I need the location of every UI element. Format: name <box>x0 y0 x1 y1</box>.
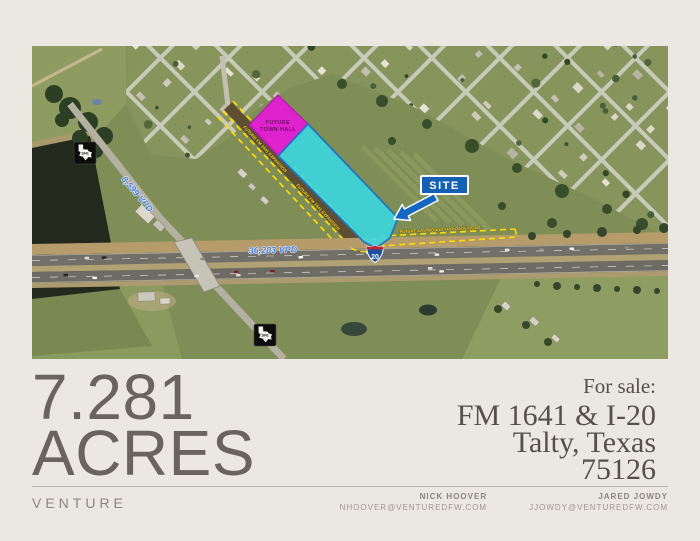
footer: VENTURE NICK HOOVER NHOOVER@VENTUREDFW.C… <box>32 492 668 512</box>
acreage-label: ACRES <box>32 425 255 481</box>
fm1641-shield-icon-south <box>254 324 276 346</box>
town-hall-label-line2: TOWN HALL <box>260 127 296 133</box>
town-hall-label-line1: FUTURE <box>266 120 290 126</box>
pond <box>341 322 367 336</box>
aerial-map-svg: 1641 <box>32 46 668 359</box>
fm1641-shield-icon <box>74 142 96 164</box>
contact-block: JARED JOWDY JJOWDY@VENTUREDFW.COM <box>529 492 668 512</box>
flyer-page: 1641 <box>0 0 700 541</box>
contact-name: JARED JOWDY <box>529 492 668 501</box>
address-line-2: Talty, Texas <box>457 429 656 456</box>
details-section: 7.281 ACRES For sale: FM 1641 & I-20 Tal… <box>32 369 668 483</box>
site-callout-label: SITE <box>429 180 459 192</box>
contact-email: NHOOVER@VENTUREDFW.COM <box>340 503 487 512</box>
for-sale-label: For sale: <box>457 375 656 398</box>
contact-email: JJOWDY@VENTUREDFW.COM <box>529 503 668 512</box>
acreage-heading: 7.281 ACRES <box>32 369 255 481</box>
sale-address-block: For sale: FM 1641 & I-20 Talty, Texas 75… <box>457 369 668 483</box>
aerial-map: 1641 <box>32 46 668 359</box>
traffic-count-i20: 36,203 VPD <box>249 244 298 255</box>
address-line-3: 75126 <box>457 456 656 483</box>
pond-small <box>419 305 437 316</box>
footer-divider <box>32 486 668 487</box>
address-line-1: FM 1641 & I-20 <box>457 402 656 429</box>
contact-name: NICK HOOVER <box>340 492 487 501</box>
contacts: NICK HOOVER NHOOVER@VENTUREDFW.COM JARED… <box>340 492 668 512</box>
pool <box>92 99 102 105</box>
contact-block: NICK HOOVER NHOOVER@VENTUREDFW.COM <box>340 492 487 512</box>
brand-logo: VENTURE <box>32 492 127 511</box>
i20-shield-number: 20 <box>371 254 379 261</box>
